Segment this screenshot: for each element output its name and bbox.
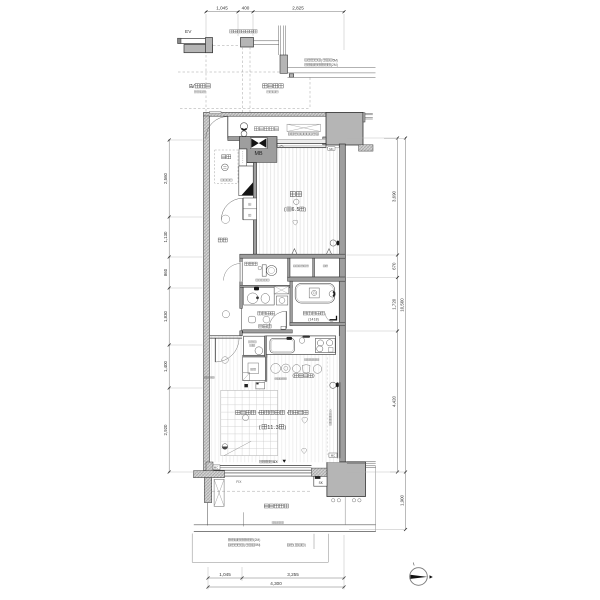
svg-text:1,045: 1,045 <box>216 6 228 11</box>
svg-text:EV: EV <box>185 29 192 35</box>
svg-text:2,560: 2,560 <box>163 172 168 184</box>
svg-text:4,300: 4,300 <box>270 581 282 586</box>
svg-text:): ) <box>284 425 286 431</box>
svg-text:2,825: 2,825 <box>292 6 304 11</box>
svg-text:1,045: 1,045 <box>219 572 231 577</box>
svg-text:6.5: 6.5 <box>292 207 300 213</box>
svg-text:1,900: 1,900 <box>399 494 404 506</box>
svg-text:EV: EV <box>189 84 195 90</box>
svg-text:(2M): (2M) <box>331 63 338 67</box>
svg-text:10,500: 10,500 <box>399 298 404 312</box>
svg-text:1,130: 1,130 <box>163 231 168 243</box>
svg-text:860: 860 <box>163 268 168 276</box>
svg-text:3,255: 3,255 <box>287 572 299 577</box>
svg-text:): ) <box>305 543 306 547</box>
svg-text:5M): 5M) <box>255 543 260 547</box>
svg-text:(2M): (2M) <box>254 538 261 542</box>
svg-text:670: 670 <box>391 262 396 270</box>
svg-text:MC: MC <box>329 147 333 151</box>
svg-text:(1418): (1418) <box>308 317 319 321</box>
svg-text:1,720: 1,720 <box>391 298 396 310</box>
svg-text:1,830: 1,830 <box>163 310 168 322</box>
svg-text:5M): 5M) <box>333 58 338 62</box>
svg-text:MC: MC <box>214 466 218 470</box>
svg-text:MB: MB <box>254 151 262 157</box>
svg-text:3,690: 3,690 <box>391 190 396 202</box>
svg-text:BOX: BOX <box>329 409 333 414</box>
svg-text:2,920: 2,920 <box>163 424 168 436</box>
svg-text:4,420: 4,420 <box>391 395 396 407</box>
svg-text:MC: MC <box>331 453 335 457</box>
svg-text:BOX: BOX <box>273 460 279 464</box>
svg-text:400: 400 <box>242 6 250 11</box>
svg-text:(: ( <box>259 425 261 431</box>
svg-text:11.3: 11.3 <box>267 425 279 431</box>
svg-text:FIX: FIX <box>236 480 242 484</box>
svg-text:1,400: 1,400 <box>163 360 168 372</box>
